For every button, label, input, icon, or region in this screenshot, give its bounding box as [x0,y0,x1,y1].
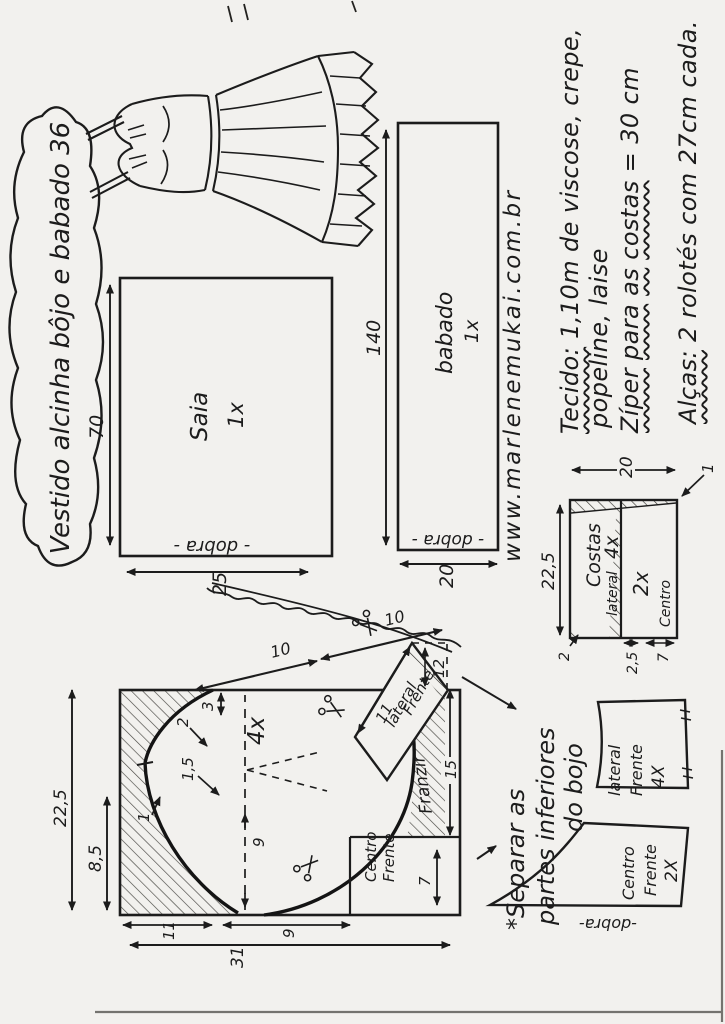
babado-width-dim: 140 [363,320,385,356]
costas-d-top: 2 [557,652,573,661]
note-line-2: partes inferiores [532,727,560,925]
dim-3: 3 [199,701,217,711]
saia-qty: 1x [224,402,248,428]
centro-frente-l1: Centro [619,846,638,900]
website-url: www.marlenemukai.com.br [500,188,526,562]
pattern-title: Vestido alcinha bôjo e babado 36 [46,118,76,558]
dim-9-inner: 9 [250,837,268,847]
costas-centro-label: Centro [658,580,674,627]
saia-name: Saia [187,392,213,441]
centro-frente-qty: 2X [662,859,682,882]
dress-sketch [86,52,378,246]
bojo-centro-l1: Centro [362,832,380,882]
instruction-line-zipper: Zíper para as costas = 30 cm [616,67,644,433]
costas-height-dim: 20 [617,456,637,478]
bojo-qty: 4x [244,716,270,745]
dim-10a: 10 [268,639,292,662]
bojo-draft: 4x Franzir Centro Frente lateral Frente … [51,607,460,968]
dim-15: 15 [442,760,460,779]
bojo-centro-l2: Frente [380,833,398,882]
dim-8-5: 8,5 [86,845,106,872]
dim-10b: 10 [382,607,406,630]
dress-ruffle-hem [354,52,378,246]
costas-d-bottom: 7 [656,653,672,662]
instruction-line-fabric: Tecido: 1,10m de viscose, crepe, [556,28,584,434]
stray-marks [228,1,356,22]
straps-label: Alças: [674,350,702,424]
dim-1-5: 1,5 [179,757,197,781]
babado-qty: 1x [461,319,483,343]
centro-frente-fold-label: -dobra- [579,915,637,934]
babado-height-dim: 20 [436,564,458,588]
note-line-1: *Separar as [502,789,530,930]
costas-width-dim: 22,5 [539,552,559,590]
zipper-value: = 30 cm [616,67,644,180]
scissors-icon [292,851,322,882]
lateral-frente-qty: 4X [649,765,669,788]
babado-piece: babado 1x - dobra - 140 20 [363,123,498,588]
costas-qty-centro: 2x [629,571,653,596]
note-arrow-2 [477,846,496,859]
pattern-sheet-rotated: Saia 1x - dobra - 70 25 babado 1x - dobr… [0,0,725,1024]
babado-name: babado [433,292,458,374]
dim-11: 11 [160,921,178,940]
fabric-label: Tecido: [556,347,584,434]
saia-width-dim: 70 [86,415,108,439]
note-arrow-1 [462,677,516,709]
costas-d-mid: 2,5 [625,652,641,674]
instruction-line-fabric2: popeline, laise [585,248,613,428]
lateral-frente-l1: lateral [605,744,624,796]
dim-2: 2 [174,717,192,727]
zipper-w3: as [616,268,644,296]
zipper-w2: para [616,304,644,360]
scissors-icon [318,695,347,723]
centro-frente-l2: Frente [641,844,660,896]
scanned-pattern-sheet: Saia 1x - dobra - 70 25 babado 1x - dobr… [0,0,725,1024]
dim-12: 12 [430,659,448,678]
babado-fold-label: - dobra - [412,530,484,550]
dim-9: 9 [280,928,298,938]
costas-d-corner: 1 [699,463,717,473]
instruction-line-straps: Alças: 2 rolotés com 27cm cada. [674,20,702,424]
costas-lateral-label: lateral [605,571,621,616]
fabric-value: 1,10m de viscose, crepe, [556,28,584,347]
straps-value: 2 rolotés com 27cm cada. [674,20,702,350]
strap-line [195,661,317,690]
zipper-w4: costas [616,180,644,259]
lateral-frente-l2: Frente [627,744,646,796]
dim-31: 31 [228,946,248,968]
saia-fold-label: - dobra - [174,536,251,557]
saia-piece: Saia 1x - dobra - 70 25 [86,278,332,596]
costas-qty-lateral: 4x [601,535,623,559]
zipper-label: Zíper [616,368,644,433]
note-line-3: do bojo [560,743,588,832]
dim-22-5: 22,5 [51,789,71,827]
signature-scrawl [207,583,461,652]
dim-1: 1 [135,812,153,822]
costas-piece: Costas 4x lateral 2x Centro 22,5 20 1 2 … [539,453,717,674]
lateral-frente-piece: lateral Frente 4X [597,700,693,796]
dim-7: 7 [416,876,434,886]
